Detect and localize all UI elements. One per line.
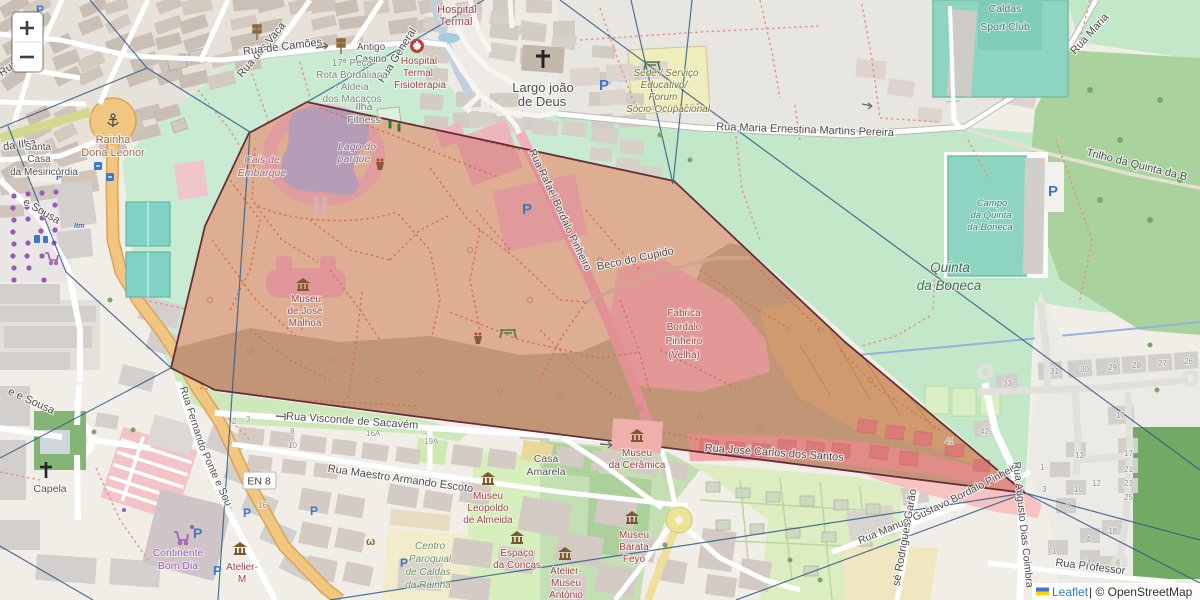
svg-text:| © OpenStreetMap: | © OpenStreetMap — [1089, 585, 1193, 599]
svg-text:23: 23 — [1124, 479, 1133, 488]
svg-text:Lago do: Lago do — [338, 141, 376, 153]
svg-text:- Aldeia: - Aldeia — [335, 82, 369, 93]
svg-text:Forum: Forum — [649, 92, 678, 103]
svg-text:1: 1 — [1040, 463, 1045, 472]
svg-text:da Boneca: da Boneca — [967, 222, 1012, 233]
svg-text:Fabrica: Fabrica — [667, 308, 701, 319]
svg-text:P: P — [599, 77, 609, 94]
svg-text:26: 26 — [1184, 357, 1193, 366]
svg-text:13: 13 — [1075, 451, 1084, 460]
svg-text:da Rainha: da Rainha — [405, 580, 451, 591]
svg-text:Dona Leonor: Dona Leonor — [81, 147, 145, 159]
svg-text:Malhoa: Malhoa — [289, 318, 322, 329]
svg-text:Sede / Serviço: Sede / Serviço — [633, 68, 698, 79]
svg-text:2: 2 — [232, 417, 237, 426]
svg-text:Hospital: Hospital — [401, 56, 437, 67]
svg-text:Embarque: Embarque — [238, 167, 287, 179]
svg-text:Atelier-: Atelier- — [550, 566, 582, 577]
svg-text:Quinta: Quinta — [930, 260, 970, 275]
svg-text:Atelier-: Atelier- — [226, 562, 258, 573]
svg-text:17ª Peça: 17ª Peça — [332, 58, 373, 69]
svg-text:Largo joão: Largo joão — [512, 80, 573, 95]
svg-text:Centro: Centro — [415, 541, 445, 552]
svg-text:18: 18 — [1108, 527, 1117, 536]
svg-text:de Caldas: de Caldas — [405, 567, 450, 578]
svg-text:Educativo/: Educativo/ — [641, 80, 689, 91]
svg-text:Casa: Casa — [27, 154, 51, 165]
svg-text:P: P — [243, 506, 251, 520]
svg-text:Museu: Museu — [551, 578, 581, 589]
svg-text:Antigo: Antigo — [357, 42, 386, 53]
svg-text:17: 17 — [1116, 411, 1125, 420]
svg-text:Rota Bordaliana: Rota Bordaliana — [316, 70, 388, 81]
svg-text:Leopoldo: Leopoldo — [467, 503, 509, 514]
svg-text:Caldas: Caldas — [989, 3, 1022, 15]
svg-text:Hospital: Hospital — [437, 4, 477, 16]
svg-text:Museu: Museu — [622, 448, 652, 459]
svg-text:28: 28 — [1132, 361, 1141, 370]
svg-text:3: 3 — [1042, 485, 1047, 494]
svg-text:27: 27 — [1158, 359, 1167, 368]
svg-text:de Almeida: de Almeida — [463, 515, 513, 526]
svg-text:António: António — [549, 590, 583, 600]
svg-text:Campo: Campo — [977, 198, 1008, 209]
svg-text:P: P — [213, 563, 222, 578]
svg-text:3: 3 — [1086, 557, 1091, 566]
svg-text:Santa: Santa — [25, 142, 52, 153]
svg-text:Bom Dia: Bom Dia — [158, 560, 198, 572]
svg-text:3: 3 — [246, 415, 251, 424]
svg-text:19A: 19A — [424, 437, 439, 446]
svg-text:8: 8 — [1066, 501, 1071, 510]
svg-text:Termal: Termal — [403, 68, 433, 79]
svg-text:Rainha: Rainha — [96, 134, 132, 146]
svg-text:ω: ω — [366, 536, 375, 548]
svg-text:Sport Club: Sport Club — [980, 21, 1030, 33]
svg-text:8: 8 — [290, 427, 295, 436]
svg-text:da Mesiricórdia: da Mesiricórdia — [10, 167, 78, 178]
svg-text:17: 17 — [1124, 449, 1133, 458]
svg-text:Itm: Itm — [74, 223, 85, 230]
svg-text:1: 1 — [1052, 547, 1057, 556]
svg-text:42: 42 — [980, 427, 989, 436]
svg-text:10: 10 — [288, 441, 297, 450]
svg-text:21: 21 — [1124, 465, 1133, 474]
svg-text:30: 30 — [1080, 365, 1089, 374]
svg-text:16A: 16A — [366, 429, 381, 438]
svg-text:Bordalo: Bordalo — [667, 322, 702, 333]
svg-text:Leaflet: Leaflet — [1052, 585, 1089, 599]
svg-text:16: 16 — [258, 501, 267, 510]
svg-text:da Concas: da Concas — [493, 560, 541, 571]
svg-text:41: 41 — [945, 437, 954, 446]
svg-text:Paroquial: Paroquial — [409, 554, 452, 565]
svg-text:EN 8: EN 8 — [247, 476, 271, 488]
svg-text:12: 12 — [1092, 479, 1101, 488]
svg-text:Continente: Continente — [153, 547, 204, 559]
svg-text:P: P — [1048, 183, 1058, 200]
svg-text:4: 4 — [1086, 535, 1091, 544]
svg-text:da Boneca: da Boneca — [917, 278, 982, 293]
svg-text:da Quinta: da Quinta — [970, 210, 1011, 221]
svg-text:Fitness: Fitness — [347, 114, 381, 126]
svg-text:da Cerâmica: da Cerâmica — [609, 460, 666, 471]
svg-text:M: M — [238, 574, 246, 585]
svg-text:29: 29 — [1108, 363, 1117, 372]
svg-text:10: 10 — [1074, 485, 1083, 494]
svg-text:Capela: Capela — [33, 483, 66, 495]
svg-text:Termal: Termal — [439, 16, 472, 28]
svg-text:P: P — [522, 201, 532, 218]
svg-text:31: 31 — [1050, 367, 1059, 376]
svg-text:Museu: Museu — [619, 530, 649, 541]
svg-text:P: P — [310, 504, 318, 518]
svg-text:Casa: Casa — [534, 453, 559, 465]
svg-text:de José: de José — [287, 306, 322, 317]
svg-text:Amarela: Amarela — [526, 466, 565, 478]
svg-text:parque: parque — [337, 153, 371, 165]
svg-text:P: P — [193, 525, 202, 541]
svg-text:dos Macaços: dos Macaços — [323, 94, 382, 105]
svg-text:Pinheiro: Pinheiro — [666, 336, 703, 347]
svg-text:de Deus: de Deus — [518, 94, 567, 109]
svg-text:(Velha): (Velha) — [668, 350, 700, 361]
svg-text:Cais de: Cais de — [244, 154, 280, 166]
svg-text:Sócio-Ocupacional: Sócio-Ocupacional — [626, 104, 711, 115]
svg-text:Museu: Museu — [473, 491, 503, 502]
svg-text:Espaço: Espaço — [500, 548, 534, 559]
svg-text:33: 33 — [1003, 379, 1012, 388]
svg-text:Fisioterapia: Fisioterapia — [394, 80, 446, 91]
svg-text:Museu: Museu — [291, 294, 321, 305]
svg-text:25: 25 — [1124, 493, 1133, 502]
svg-text:Feyo: Feyo — [623, 554, 646, 565]
svg-text:Barata: Barata — [619, 542, 649, 553]
